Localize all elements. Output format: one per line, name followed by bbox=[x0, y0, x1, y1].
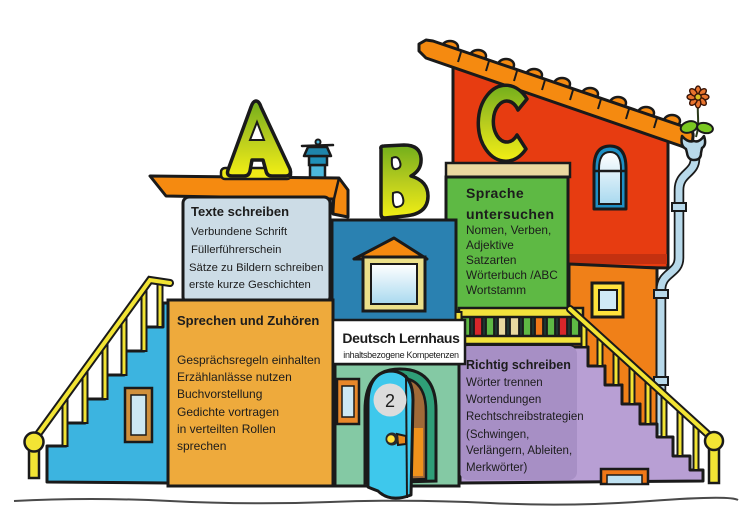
svg-text:Sprechen und Zuhören: Sprechen und Zuhören bbox=[177, 313, 319, 328]
svg-text:Merkwörter): Merkwörter) bbox=[466, 462, 528, 474]
svg-text:Texte schreiben: Texte schreiben bbox=[191, 204, 289, 219]
svg-text:Nomen, Verben,: Nomen, Verben, bbox=[466, 223, 551, 237]
svg-text:Deutsch Lernhaus: Deutsch Lernhaus bbox=[342, 330, 460, 346]
svg-text:Gedichte vortragen: Gedichte vortragen bbox=[177, 405, 279, 419]
svg-text:Richtig schreiben: Richtig schreiben bbox=[466, 358, 571, 372]
svg-text:Verlängern, Ableiten,: Verlängern, Ableiten, bbox=[466, 445, 572, 457]
svg-text:untersuchen: untersuchen bbox=[466, 206, 554, 222]
svg-text:Wörterbuch /ABC: Wörterbuch /ABC bbox=[466, 268, 558, 282]
svg-text:Verbundene Schrift: Verbundene Schrift bbox=[191, 226, 288, 238]
svg-text:Wortstamm: Wortstamm bbox=[466, 283, 526, 297]
svg-text:Wortendungen: Wortendungen bbox=[466, 394, 541, 406]
svg-text:Buchvorstellung: Buchvorstellung bbox=[177, 387, 262, 401]
svg-text:(Schwingen,: (Schwingen, bbox=[466, 429, 529, 441]
svg-text:Erzählanlässe nutzen: Erzählanlässe nutzen bbox=[177, 370, 292, 384]
svg-text:erste kurze Geschichten: erste kurze Geschichten bbox=[189, 279, 311, 291]
svg-text:Adjektive: Adjektive bbox=[466, 238, 514, 252]
svg-text:inhaltsbezogene Kompetenzen: inhaltsbezogene Kompetenzen bbox=[343, 350, 459, 360]
svg-text:Rechtschreibstrategien: Rechtschreibstrategien bbox=[466, 411, 584, 423]
svg-text:Füllerführerschein: Füllerführerschein bbox=[191, 244, 281, 256]
svg-text:Wörter trennen: Wörter trennen bbox=[466, 377, 543, 389]
svg-text:Sprache: Sprache bbox=[466, 185, 524, 201]
svg-text:Gesprächsregeln einhalten: Gesprächsregeln einhalten bbox=[177, 353, 320, 367]
svg-text:Sätze zu Bildern schreiben: Sätze zu Bildern schreiben bbox=[189, 262, 323, 274]
svg-text:sprechen: sprechen bbox=[177, 439, 226, 453]
svg-text:2: 2 bbox=[385, 391, 395, 411]
svg-text:in verteilten Rollen: in verteilten Rollen bbox=[177, 422, 276, 436]
svg-text:Satzarten: Satzarten bbox=[466, 253, 517, 267]
